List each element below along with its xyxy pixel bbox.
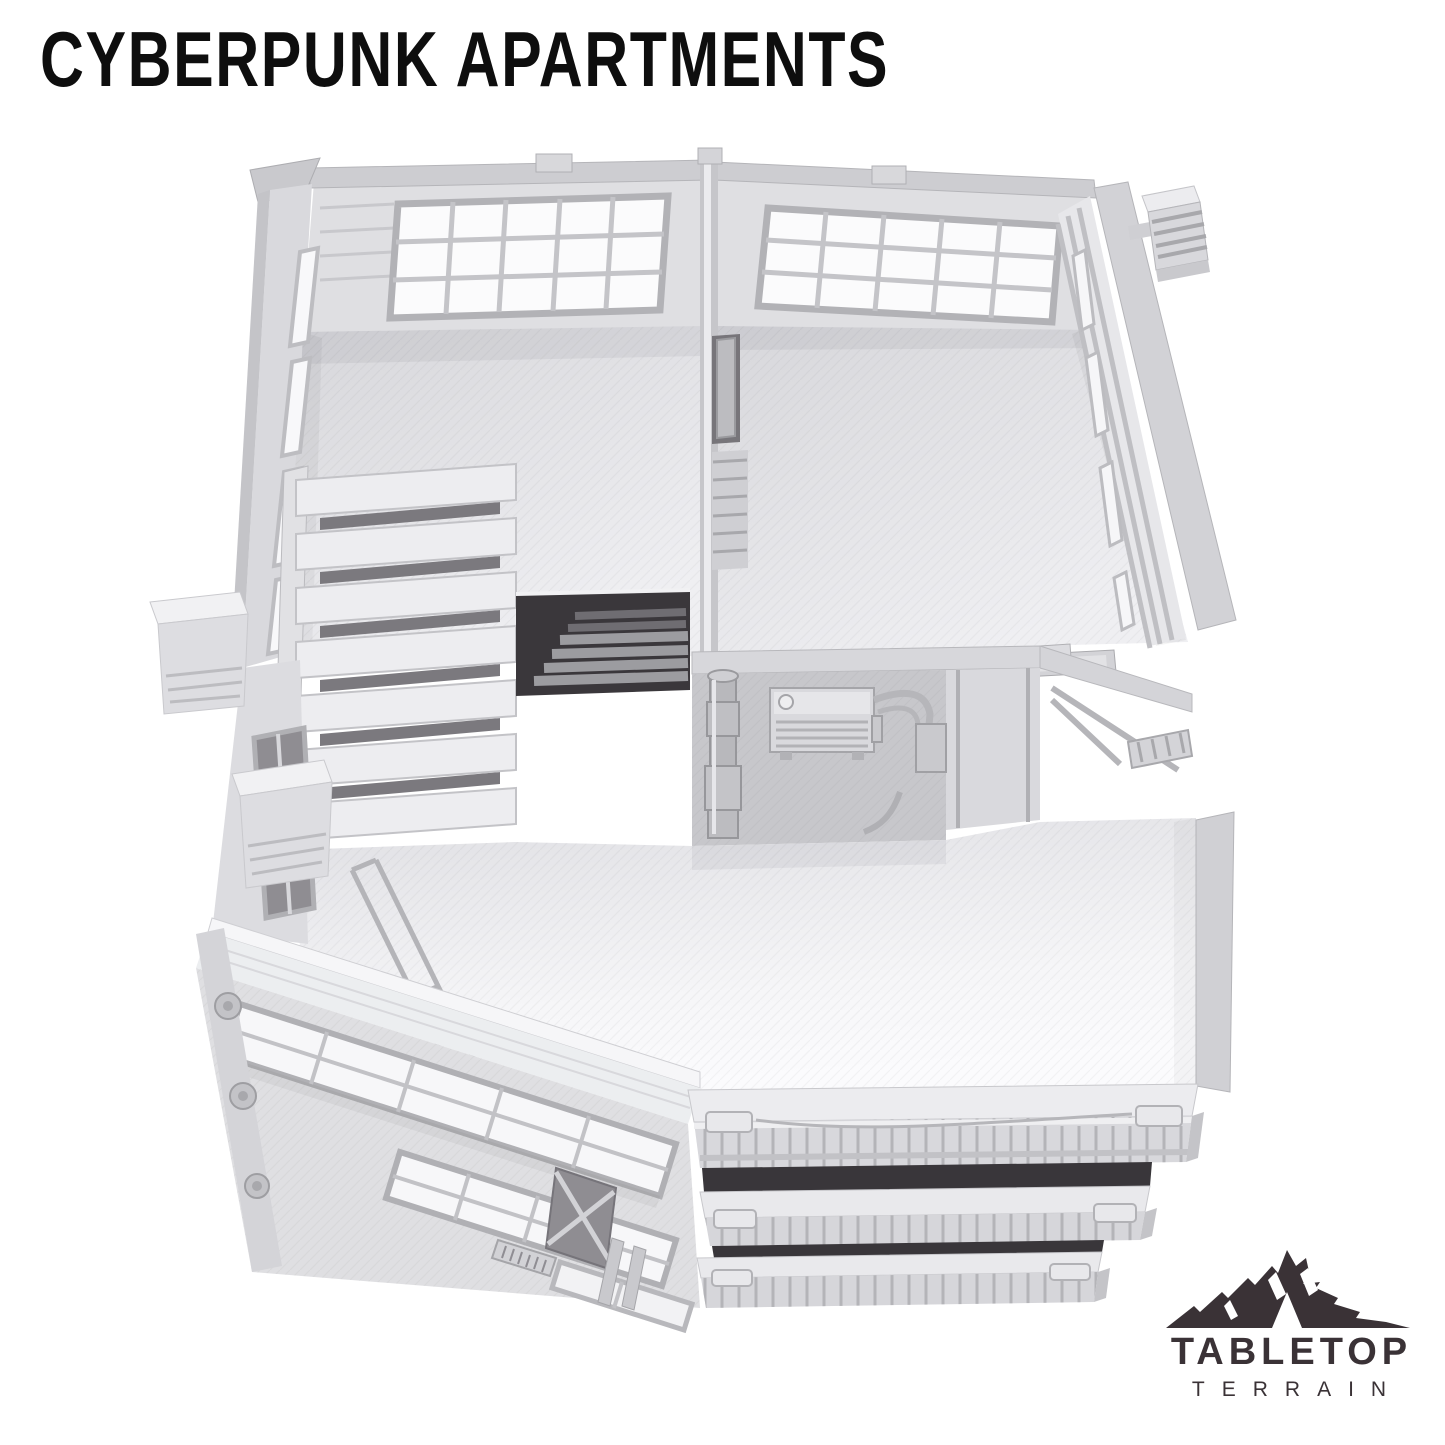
window-grid-left-room [390,196,668,318]
balcony-3 [697,1252,1110,1308]
logo-tagline: TERRAIN [1158,1379,1420,1400]
product-page: CYBERPUNK APARTMENTS [0,0,1445,1445]
wall-clip [536,154,572,172]
ac-unit [770,688,874,760]
balcony-stack [688,1084,1204,1308]
doorway [946,668,1040,830]
brand-logo: TABLETOP TERRAIN [1158,1236,1420,1400]
stairwell-opening [516,588,690,696]
machinery-wall [692,646,1192,846]
window-grid-right-room [758,208,1060,322]
standpipe [705,670,741,838]
left-vent-box-lower [232,760,332,888]
sliding-door-panel [717,338,735,438]
right-outer-wall [1196,812,1234,1092]
balcony-2 [700,1186,1157,1258]
product-photo [0,0,1445,1445]
left-vent-box-upper [150,592,248,714]
balcony-1 [688,1084,1204,1192]
wall-clip [872,166,906,184]
mountain-icon [1160,1236,1418,1331]
logo-wordmark: TABLETOP [1158,1333,1420,1371]
